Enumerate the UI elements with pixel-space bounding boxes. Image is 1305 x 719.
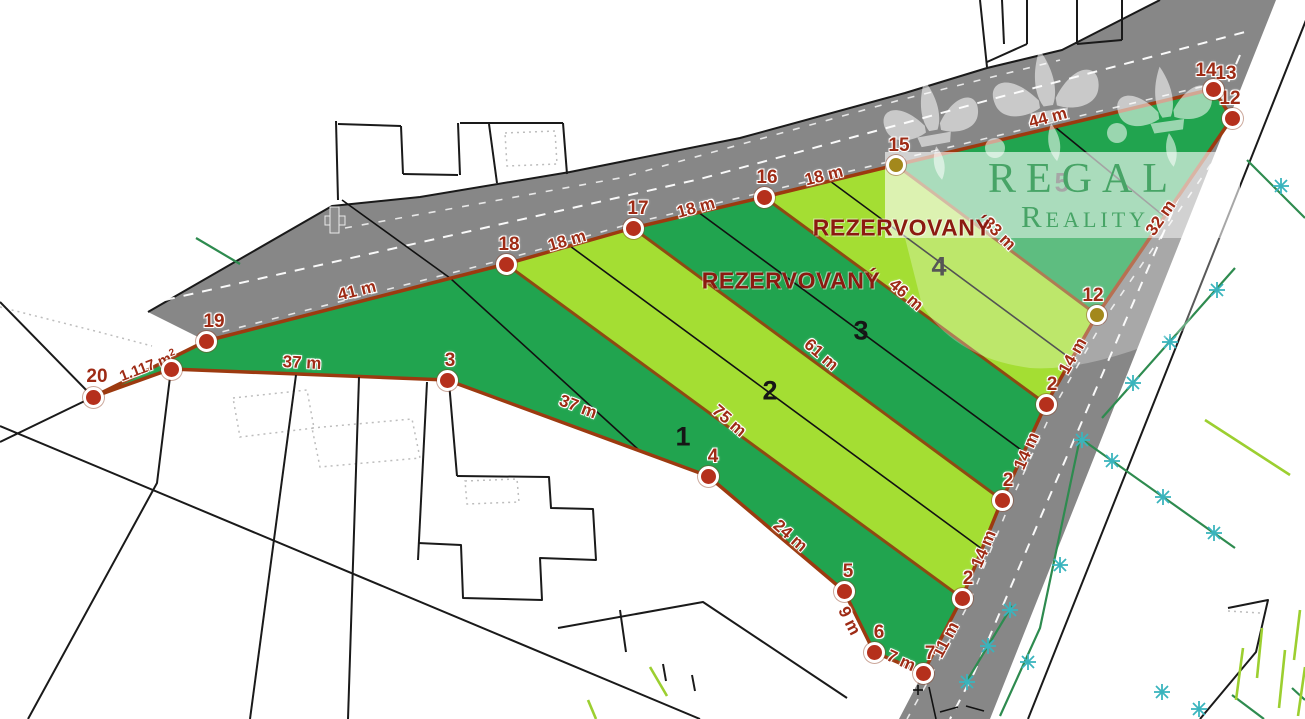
map-base-layer: [0, 0, 1305, 719]
cadastral-map: 12345 REGAL Reality 41 m18 m18 m18 m44 m…: [0, 0, 1305, 719]
